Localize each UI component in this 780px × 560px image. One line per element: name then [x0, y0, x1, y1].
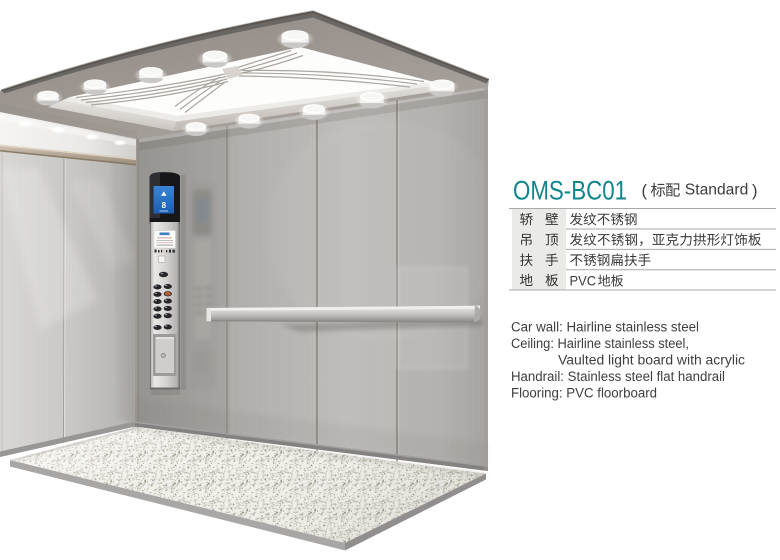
svg-text:8: 8: [162, 201, 167, 210]
svg-text:OMS-BC01: OMS-BC01: [513, 176, 627, 206]
svg-text:Flooring: PVC floorboard: Flooring: PVC floorboard: [511, 386, 657, 401]
svg-text:Vaulted light board with acryl: Vaulted light board with acrylic: [558, 353, 745, 368]
svg-text:Car wall: Hairline stainless s: Car wall: Hairline stainless steel: [511, 320, 699, 335]
svg-text:): ): [752, 182, 758, 200]
svg-text:PVC: PVC: [570, 274, 597, 289]
svg-text:Ceiling: Hairline stainless st: Ceiling: Hairline stainless steel,: [511, 336, 689, 351]
svg-text:Standard: Standard: [685, 182, 749, 199]
svg-text:Handrail: Stainless steel flat: Handrail: Stainless steel flat handrail: [511, 369, 725, 384]
svg-text:(: (: [642, 182, 648, 200]
